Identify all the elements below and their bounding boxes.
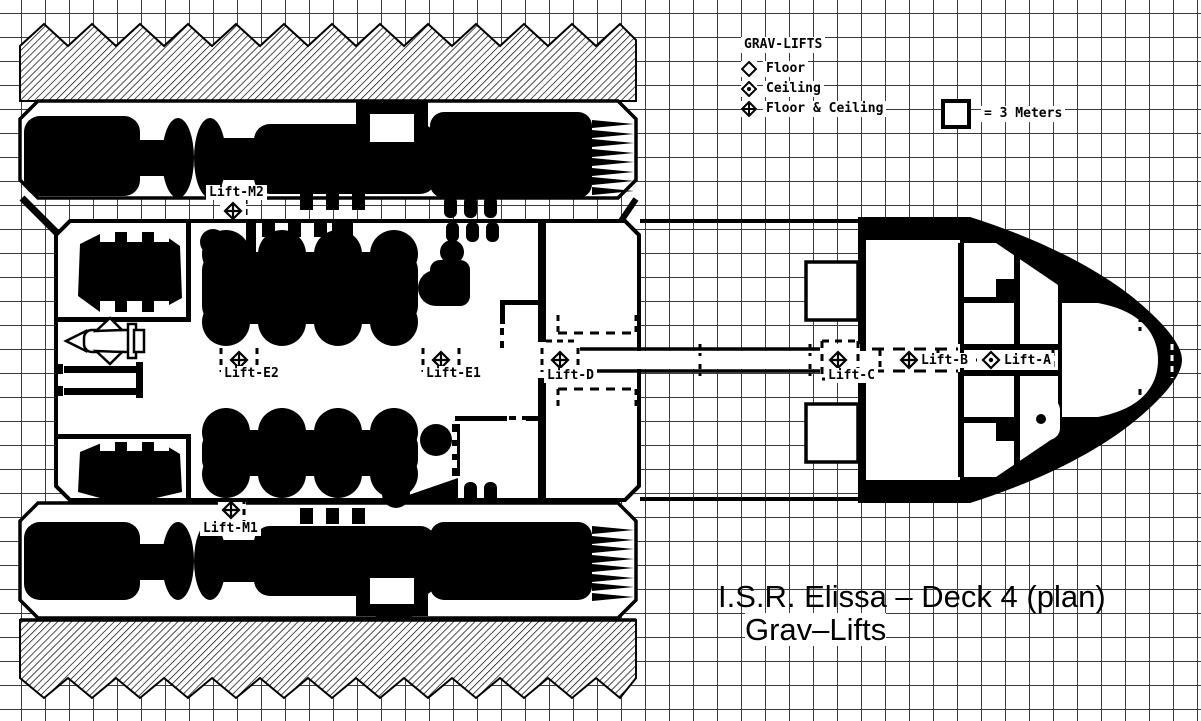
- bottom-engine-notch: [370, 578, 414, 604]
- top-engine-notch: [370, 114, 414, 142]
- bottom-radiator-hatch: [20, 620, 636, 698]
- strut: [22, 198, 57, 233]
- legend-ceiling-label: Ceiling: [763, 81, 824, 97]
- lift-label-a: Lift-A: [1001, 353, 1054, 368]
- ceiling-icon: [741, 81, 757, 97]
- legend-title: GRAV-LIFTS: [741, 37, 825, 53]
- legend-item-floor-ceiling: Floor & Ceiling: [741, 99, 886, 119]
- turret-bay-lower: [806, 404, 858, 462]
- floor-icon: [741, 61, 757, 77]
- page-title: I.S.R. Elissa – Deck 4 (plan): [718, 580, 1106, 613]
- deck-plan-page: Lift-M2 Lift-E2 Lift-E1 Lift-D Lift-C Li…: [0, 0, 1201, 721]
- port-lower-machine: [78, 440, 182, 498]
- sensor-dome: [1036, 414, 1046, 424]
- legend-floor-ceiling-label: Floor & Ceiling: [763, 101, 886, 117]
- lift-label-m1: Lift-M1: [200, 521, 261, 536]
- lift-label-c: Lift-C: [825, 368, 878, 383]
- turret-bay-upper: [806, 262, 858, 320]
- legend: GRAV-LIFTS Floor Ceiling Floor & Ceiling: [741, 33, 886, 119]
- lift-label-d: Lift-D: [544, 368, 597, 383]
- scale-note: = 3 Meters: [941, 99, 1065, 129]
- lift-label-m2: Lift-M2: [206, 185, 267, 200]
- bottom-nacelle: [20, 480, 636, 698]
- scale-square-icon: [941, 99, 971, 129]
- title-block: I.S.R. Elissa – Deck 4 (plan) Grav–Lifts: [718, 580, 1106, 646]
- legend-item-floor: Floor: [741, 59, 886, 79]
- strut: [621, 199, 636, 221]
- page-subtitle: Grav–Lifts: [745, 613, 886, 646]
- floor-ceiling-icon: [741, 101, 757, 117]
- scale-label: = 3 Meters: [981, 106, 1065, 122]
- port-upper-machine: [78, 230, 182, 313]
- lift-label-e1: Lift-E1: [423, 366, 484, 381]
- lift-label-e2: Lift-E2: [221, 366, 282, 381]
- top-nacelle: [20, 24, 636, 233]
- legend-item-ceiling: Ceiling: [741, 79, 886, 99]
- top-radiator-hatch: [20, 24, 636, 101]
- legend-floor-label: Floor: [763, 61, 808, 77]
- lift-label-b: Lift-B: [918, 353, 971, 368]
